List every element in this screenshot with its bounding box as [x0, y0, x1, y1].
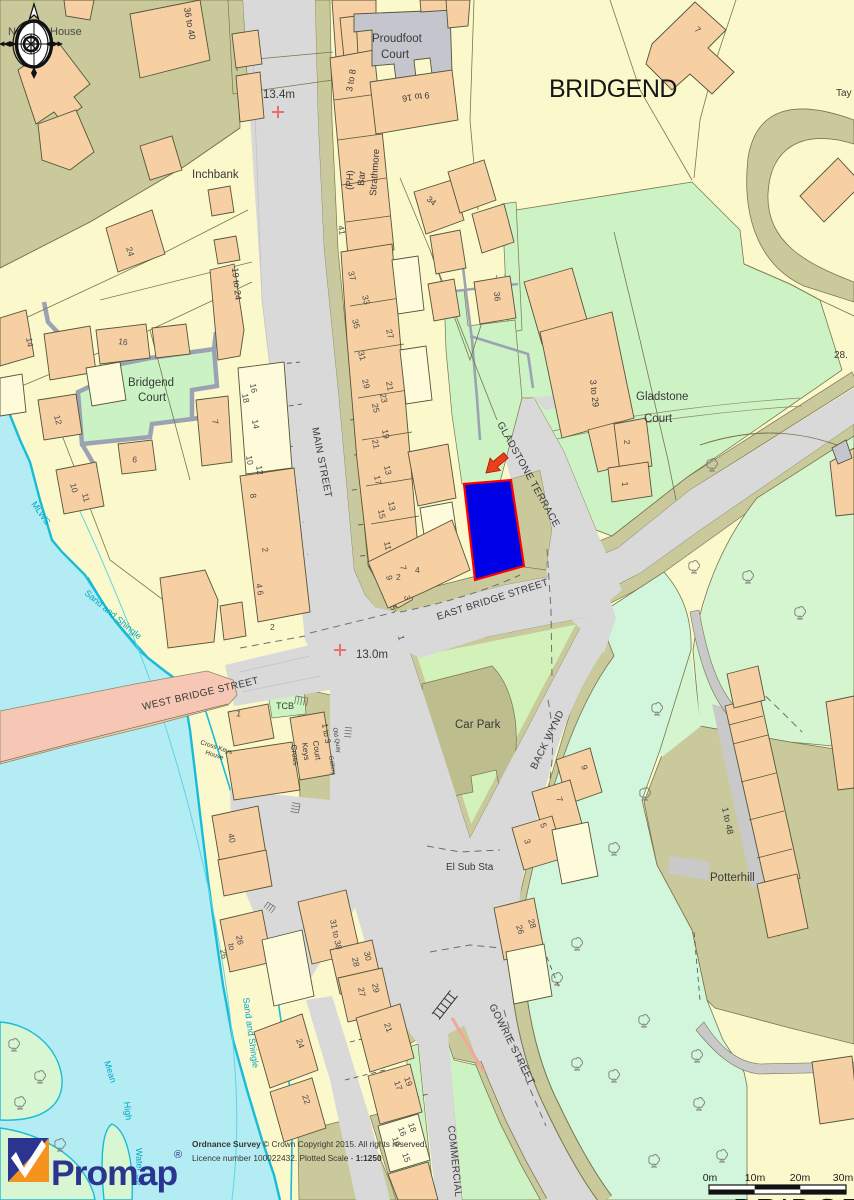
svg-text:4 6: 4 6: [254, 583, 266, 597]
svg-text:13.0m: 13.0m: [356, 649, 388, 661]
svg-text:Licence number 100022432. Plot: Licence number 100022432. Plotted Scale …: [192, 1153, 382, 1163]
svg-text:Court: Court: [138, 392, 167, 404]
svg-text:Bar: Bar: [356, 171, 368, 187]
svg-text:10m: 10m: [745, 1172, 766, 1184]
svg-text:El Sub Sta: El Sub Sta: [446, 862, 494, 873]
svg-text:Court: Court: [381, 49, 410, 61]
svg-text:Tay: Tay: [836, 88, 852, 99]
svg-text:Bridgend: Bridgend: [128, 377, 174, 389]
svg-text:Car Park: Car Park: [455, 719, 501, 731]
svg-text:14: 14: [24, 337, 36, 348]
svg-text:36: 36: [492, 291, 503, 302]
svg-text:BRIDGEN: BRIDGEN: [733, 1192, 854, 1200]
svg-text:Proudfoot: Proudfoot: [372, 33, 423, 45]
svg-text:10: 10: [244, 455, 256, 466]
svg-text:TCB: TCB: [276, 701, 294, 711]
svg-text:12: 12: [254, 465, 266, 476]
svg-text:13.4m: 13.4m: [263, 89, 295, 101]
svg-text:0m: 0m: [703, 1172, 718, 1184]
svg-text:30m: 30m: [833, 1172, 854, 1184]
svg-text:Gladstone: Gladstone: [636, 391, 688, 403]
svg-text:High: High: [122, 1101, 134, 1120]
svg-text:Ordnance Survey © Crown Copyri: Ordnance Survey © Crown Copyright 2015. …: [192, 1139, 427, 1149]
svg-text:®: ®: [174, 1149, 182, 1161]
svg-text:4: 4: [415, 565, 420, 575]
svg-text:Inchbank: Inchbank: [192, 169, 239, 181]
svg-text:(PH): (PH): [344, 170, 356, 190]
svg-text:2: 2: [396, 572, 401, 582]
svg-text:House: House: [50, 26, 82, 38]
svg-text:Court: Court: [644, 413, 673, 425]
svg-text:Potterhill: Potterhill: [710, 872, 755, 884]
svg-text:BRIDGEND: BRIDGEND: [549, 75, 677, 103]
svg-text:41: 41: [336, 225, 348, 236]
svg-text:2: 2: [270, 622, 275, 632]
svg-text:16: 16: [118, 336, 129, 347]
svg-text:18: 18: [240, 393, 252, 404]
svg-text:14: 14: [250, 419, 262, 430]
svg-text:Promap: Promap: [51, 1153, 177, 1193]
svg-text:28.: 28.: [834, 350, 848, 361]
svg-text:20m: 20m: [790, 1172, 811, 1184]
